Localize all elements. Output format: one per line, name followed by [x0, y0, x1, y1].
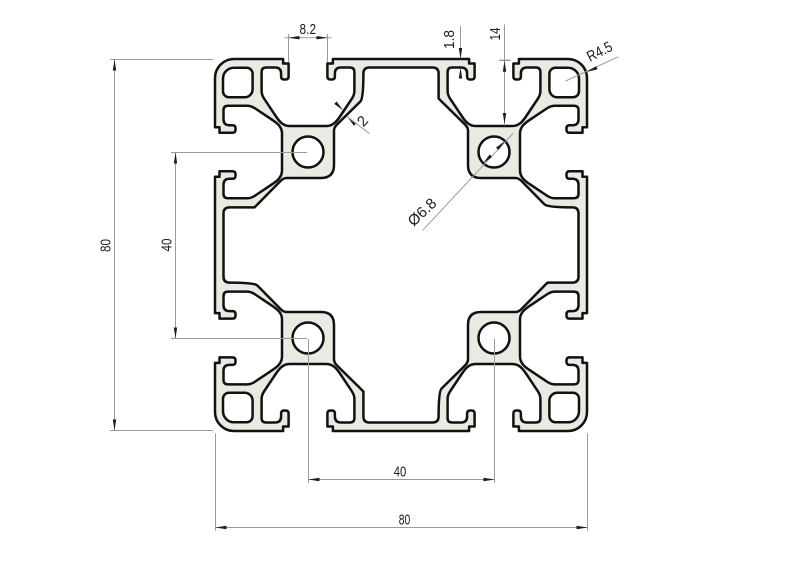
svg-text:80: 80: [98, 239, 115, 252]
svg-text:8.2: 8.2: [300, 21, 317, 38]
svg-text:80: 80: [399, 512, 411, 529]
svg-text:1.8: 1.8: [441, 30, 458, 49]
svg-text:14: 14: [487, 28, 504, 41]
svg-text:40: 40: [394, 464, 407, 481]
svg-text:40: 40: [159, 239, 176, 252]
